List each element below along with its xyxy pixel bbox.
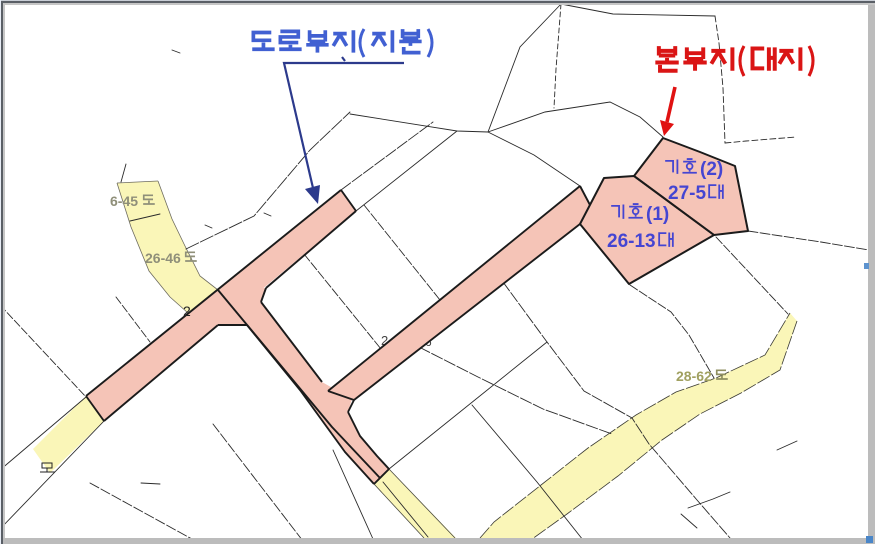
svg-text:2: 2 [183, 303, 191, 319]
svg-text:(2): (2) [700, 159, 723, 180]
svg-text:26-46: 26-46 [145, 250, 181, 266]
svg-text:26-13: 26-13 [607, 231, 656, 252]
svg-text:(1): (1) [646, 204, 669, 225]
svg-text:6-45: 6-45 [110, 193, 138, 209]
svg-text:27-5: 27-5 [668, 183, 706, 204]
svg-text:28-62: 28-62 [676, 368, 712, 384]
